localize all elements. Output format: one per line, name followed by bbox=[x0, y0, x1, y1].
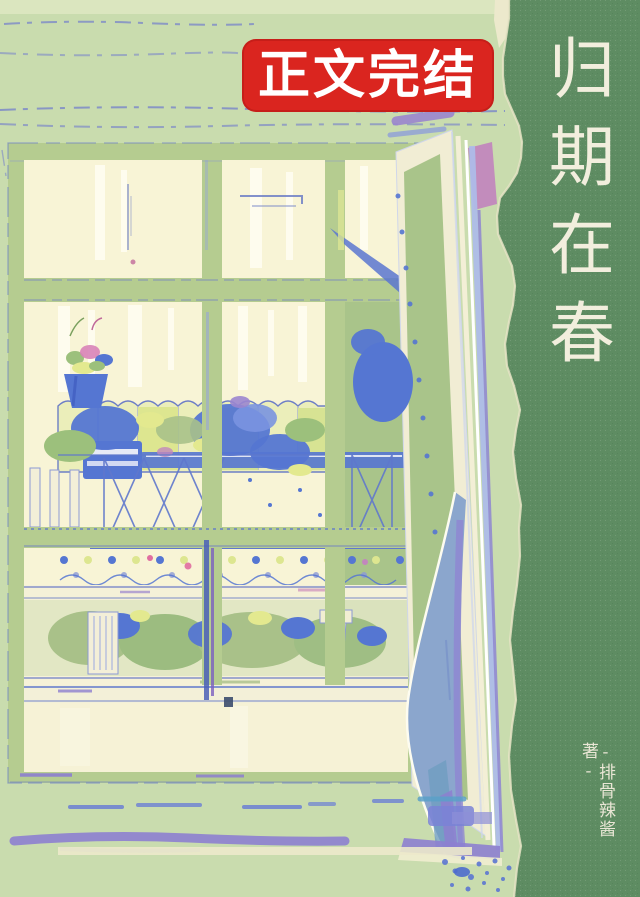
status-badge-label: 正文完结 bbox=[258, 50, 478, 102]
author-byline: -排骨辣酱 著- bbox=[580, 742, 614, 897]
status-badge: 正文完结 bbox=[242, 39, 494, 112]
book-cover: 正文完结 归期在春 -排骨辣酱 著- bbox=[0, 0, 640, 897]
book-title: 归期在春 bbox=[542, 34, 608, 386]
